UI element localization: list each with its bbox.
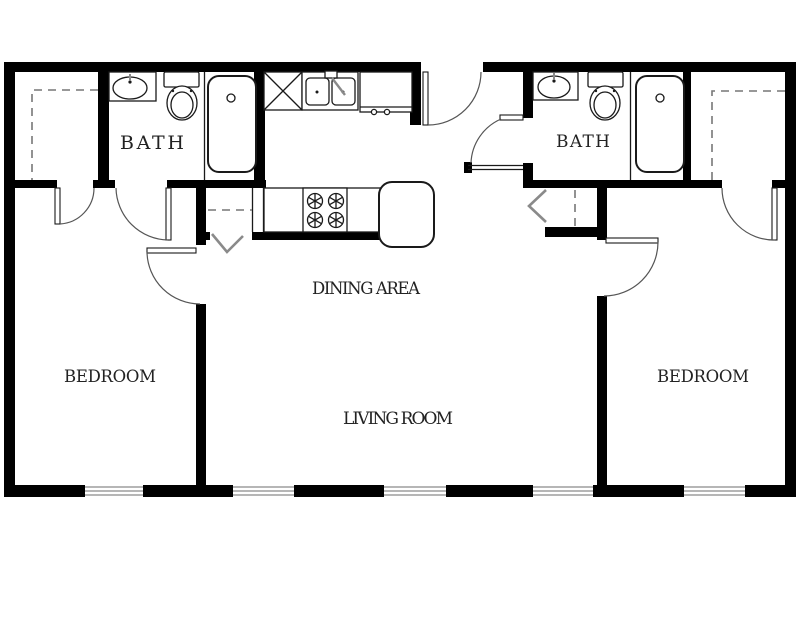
kitchen-fixtures <box>264 71 434 247</box>
wall-bed1-living-lower <box>196 304 206 497</box>
wall-hall-cap <box>464 162 472 173</box>
kitchen-double-sink <box>302 71 358 110</box>
floor-plan: BATH BATH DINING AREA LIVING ROOM BEDROO… <box>0 0 800 626</box>
dining-table <box>379 182 434 247</box>
hinged-door <box>116 188 171 240</box>
dishwasher <box>264 72 302 110</box>
hinged-door <box>604 238 658 296</box>
room-labels: BATH BATH DINING AREA LIVING ROOM BEDROO… <box>64 132 751 429</box>
wall-hallcloset-bottom <box>545 227 597 237</box>
window <box>85 485 143 497</box>
wall-bed2-living-lower <box>597 296 607 497</box>
window <box>533 485 593 497</box>
wall-right <box>785 62 796 497</box>
bathroom-sink <box>109 72 156 101</box>
wall-bed1-top-a <box>4 180 57 188</box>
room-label-bath-left: BATH <box>120 132 186 154</box>
hinged-door <box>55 188 94 224</box>
window <box>384 485 446 497</box>
room-label-living-room: LIVING ROOM <box>343 409 455 429</box>
bifold-closet-door <box>529 190 546 222</box>
hinged-door <box>423 72 481 125</box>
floor-plan-drawing: BATH BATH DINING AREA LIVING ROOM BEDROO… <box>0 0 800 626</box>
bath1-fixtures <box>109 72 256 172</box>
wall-bed2-living-upper <box>597 188 607 240</box>
room-label-bedroom-right: BEDROOM <box>657 367 751 386</box>
toilet <box>588 72 623 120</box>
wall-bed2-top-corner <box>772 180 796 188</box>
hinged-door <box>471 115 523 163</box>
toilet <box>164 72 199 120</box>
wall-bath2-bottom <box>523 180 722 188</box>
closet-shelf-dashed <box>32 90 98 180</box>
bath2-fixtures <box>533 72 684 172</box>
stove <box>303 188 347 232</box>
bathtub <box>208 76 256 172</box>
room-label-bedroom-left: BEDROOM <box>64 367 158 386</box>
bathroom-sink <box>533 72 578 100</box>
wall-bath1-bottom <box>167 180 266 188</box>
hinged-door <box>147 248 200 304</box>
window <box>233 485 294 497</box>
wall-kitchen-bottom-stub <box>196 232 210 240</box>
bifold-closet-door <box>212 234 243 252</box>
wall-kitchen-bottom <box>252 232 381 240</box>
wall-bath2-left-lower <box>523 163 533 188</box>
closet-shelf-dashed <box>712 91 785 180</box>
hinged-door <box>722 188 777 240</box>
room-label-dining-area: DINING AREA <box>312 279 422 298</box>
room-label-bath-right: BATH <box>556 132 612 152</box>
wall-left <box>4 62 15 497</box>
window <box>684 485 745 497</box>
wall-closet1-bath1 <box>98 62 109 188</box>
wall-bath2-left-upper <box>523 62 533 118</box>
refrigerator <box>360 72 412 115</box>
wall-top-left-of-entry <box>4 62 421 72</box>
bathtub <box>636 76 684 172</box>
